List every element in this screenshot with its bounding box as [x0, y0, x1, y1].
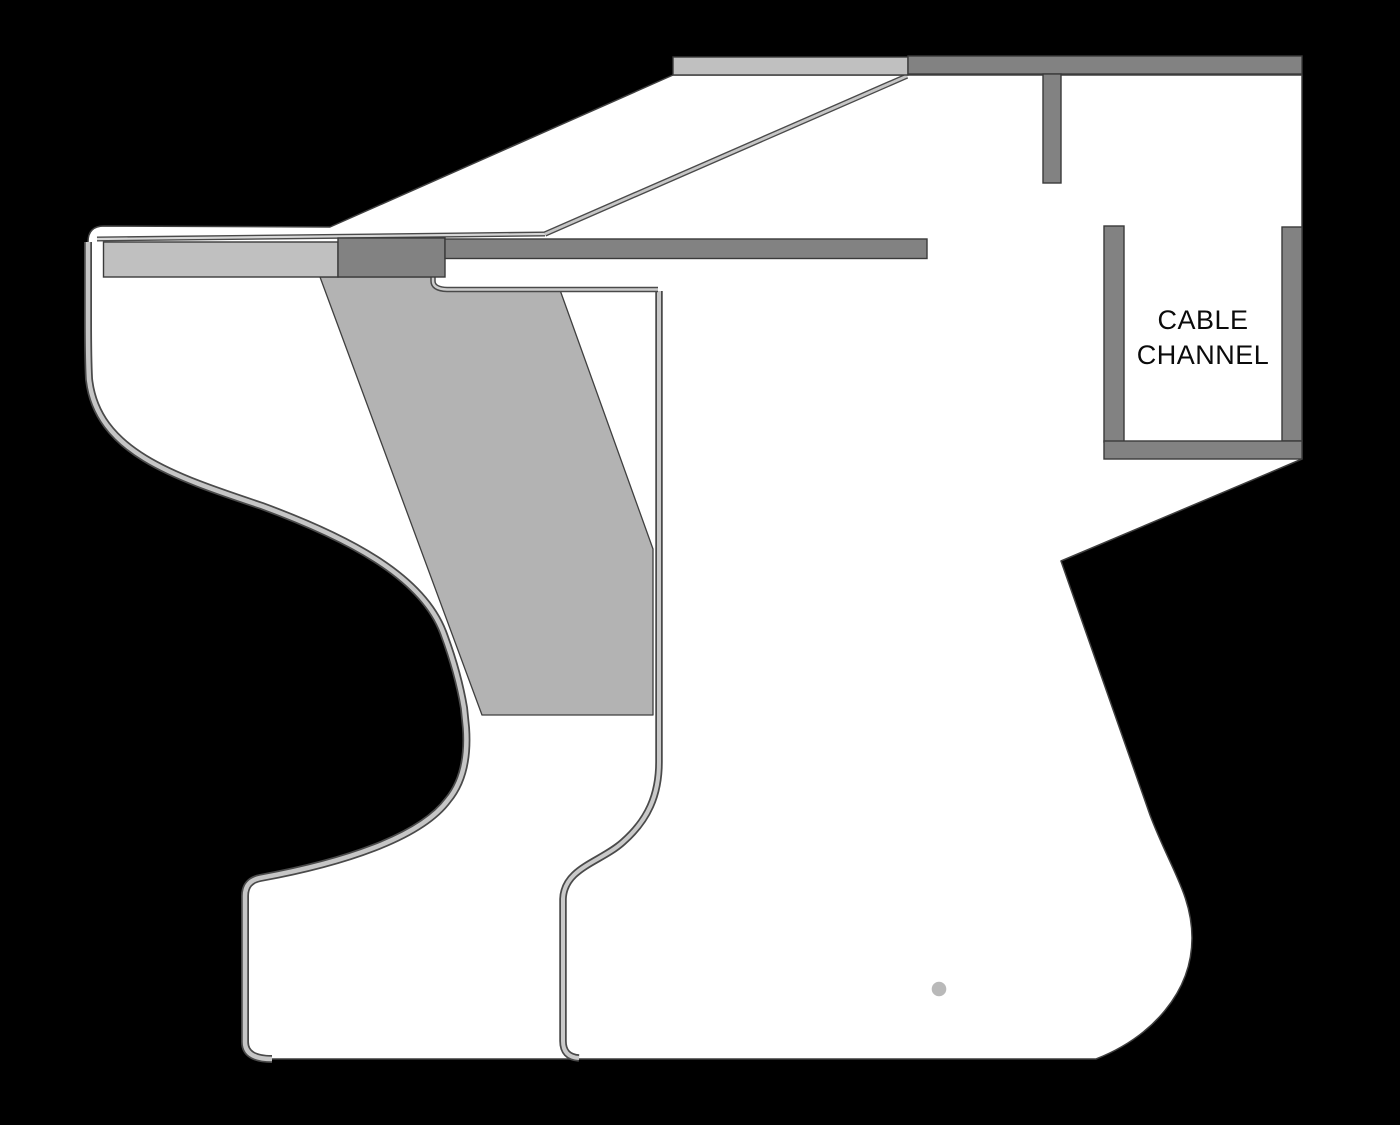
cable-channel-bottom [1104, 441, 1302, 459]
fastener-dot [932, 982, 947, 997]
console-cross-section-drawing: CABLE CHANNEL [0, 0, 1400, 1125]
diagram-canvas: CABLE CHANNEL [0, 0, 1400, 1125]
cable-channel-left-wall [1104, 226, 1124, 442]
cable-channel-label-line1: CABLE [1157, 305, 1248, 335]
armrest-bar [104, 242, 339, 277]
hanging-divider-bar [1043, 74, 1061, 183]
cable-channel-right-wall [1282, 227, 1302, 441]
keyboard-shelf-bar [445, 239, 927, 259]
top-rear-bar [908, 56, 1302, 74]
spacer-block [338, 238, 445, 277]
top-shelf-light-bar [673, 57, 908, 75]
cable-channel-label-line2: CHANNEL [1137, 340, 1270, 370]
